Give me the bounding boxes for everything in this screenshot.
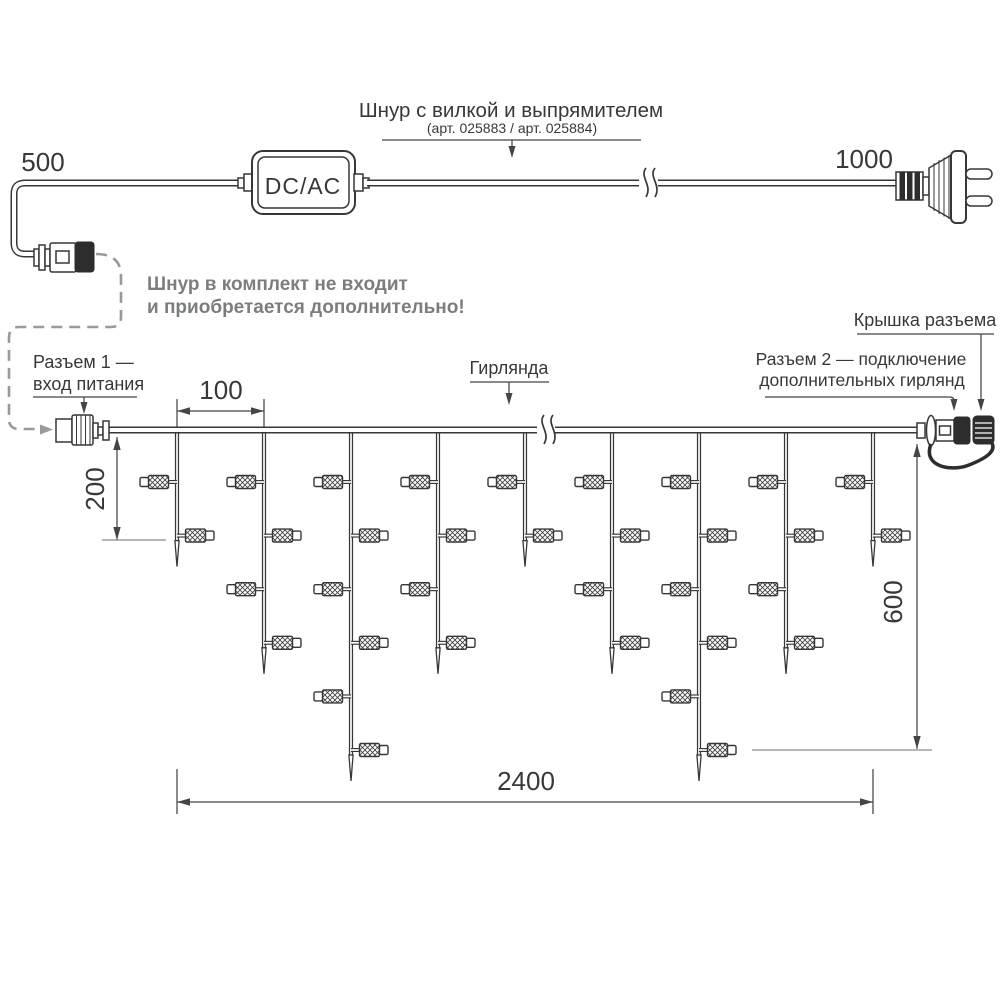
cord-break-icon [639, 168, 658, 197]
lamp-icon [488, 476, 525, 489]
arrowhead [913, 736, 920, 749]
dim-600: 600 [878, 580, 908, 623]
not-included-note-line2: и приобретается дополнительно! [147, 297, 465, 318]
drop-tip [349, 755, 353, 781]
lamp-body [149, 476, 169, 489]
lamp-tip [641, 638, 650, 647]
lamp-tip [140, 478, 149, 487]
lamp-body [360, 636, 380, 649]
lamp-tip [749, 585, 758, 594]
lamp-body [882, 529, 902, 542]
lamp-body [758, 476, 778, 489]
drop [662, 428, 736, 781]
lamp-icon [786, 529, 823, 542]
lamp-icon [264, 636, 301, 649]
lamp-body [584, 476, 604, 489]
lamp-icon [351, 529, 388, 542]
garland-drops [140, 428, 910, 781]
lamp-icon [873, 529, 910, 542]
lamp-body [273, 529, 293, 542]
lamp-icon [314, 690, 351, 703]
lamp-body [621, 636, 641, 649]
lamp-icon [264, 529, 301, 542]
lamp-body [360, 529, 380, 542]
lamp-tip [836, 478, 845, 487]
lamp-tip [662, 692, 671, 701]
drop [227, 428, 301, 674]
lamp-body [621, 529, 641, 542]
wire-break-icon [537, 415, 555, 444]
dim-2400: 2400 [497, 766, 555, 796]
lamp-tip [488, 478, 497, 487]
dashed-arrowhead [40, 425, 53, 435]
adapter-cable [14, 183, 240, 254]
lamp-tip [728, 638, 737, 647]
lamp-body [410, 476, 430, 489]
dc-ac-label: DC/AC [265, 173, 342, 199]
lamp-icon [401, 476, 438, 489]
arrowhead [81, 402, 88, 414]
lamp-icon [749, 476, 786, 489]
lamp-body [323, 583, 343, 596]
connector-cap-icon [973, 416, 994, 444]
lamp-body [360, 744, 380, 757]
cord-title: Шнур с вилкой и выпрямителем [359, 99, 663, 122]
lamp-icon [351, 636, 388, 649]
lamp-body [758, 583, 778, 596]
lamp-tip [314, 692, 323, 701]
lamp-body [671, 690, 691, 703]
drop-tip [784, 648, 788, 674]
lamp-body [447, 529, 467, 542]
lamp-tip [575, 478, 584, 487]
dashed-leader [9, 254, 121, 435]
arrowhead [113, 437, 120, 450]
lamp-body [671, 583, 691, 596]
drop [575, 428, 649, 674]
drop-tip [871, 541, 875, 567]
lamp-icon [699, 529, 736, 542]
dim-200: 200 [80, 467, 110, 510]
lamp-body [845, 476, 865, 489]
lamp-tip [662, 478, 671, 487]
cord-articles: (арт. 025883 / арт. 025884) [427, 120, 597, 136]
arrowhead [506, 393, 513, 405]
cap-label: Крышка разъема [854, 310, 997, 330]
lamp-body [534, 529, 554, 542]
lamp-body [323, 476, 343, 489]
lamp-tip [728, 531, 737, 540]
drop-tip [523, 541, 527, 567]
dimension-line [765, 397, 954, 403]
lamp-tip [380, 531, 389, 540]
lamp-icon [401, 583, 438, 596]
drop-tip [175, 541, 179, 567]
lamp-tip [728, 746, 737, 755]
connector2-label-line1: Разъем 2 — подключение [756, 349, 967, 369]
lamp-icon [575, 583, 612, 596]
lamp-tip [401, 585, 410, 594]
lamp-icon [612, 636, 649, 649]
lamp-tip [902, 531, 911, 540]
drop [836, 428, 910, 567]
lamp-icon [140, 476, 177, 489]
drop-tip [697, 755, 701, 781]
lamp-body [584, 583, 604, 596]
lamp-tip [815, 531, 824, 540]
arrowhead [951, 399, 958, 411]
drop [401, 428, 475, 674]
connector-2-plug [954, 417, 970, 444]
lamp-icon [314, 476, 351, 489]
lamp-icon [525, 529, 562, 542]
lamp-tip [815, 638, 824, 647]
arrowhead [913, 444, 920, 457]
lamp-body [236, 583, 256, 596]
lamp-icon [662, 690, 699, 703]
lamp-body [795, 529, 815, 542]
drop [314, 428, 388, 781]
lamp-tip [641, 531, 650, 540]
lamp-icon [177, 529, 214, 542]
arrowhead [177, 798, 190, 805]
power-plug-icon [896, 151, 992, 223]
arrowhead [251, 407, 264, 414]
lamp-icon [438, 529, 475, 542]
connector1-label-line2: вход питания [33, 374, 144, 394]
lamp-tip [380, 638, 389, 647]
lamp-tip [575, 585, 584, 594]
lamp-icon [314, 583, 351, 596]
dim-1000: 1000 [835, 144, 893, 174]
lamp-icon [612, 529, 649, 542]
lamp-body [447, 636, 467, 649]
lamp-body [708, 636, 728, 649]
arrowhead [978, 399, 985, 411]
connector2-label-line2: дополнительных гирлянд [759, 370, 964, 390]
lamp-icon [438, 636, 475, 649]
arrowhead [860, 798, 873, 805]
lamp-body [323, 690, 343, 703]
connector-1 [56, 415, 109, 445]
lamp-icon [227, 476, 264, 489]
lamp-tip [227, 478, 236, 487]
diagram-svg: 500 1000 Шнур с вилкой и выпрямителем (а… [0, 0, 1000, 1000]
lamp-tip [227, 585, 236, 594]
dim-500: 500 [21, 147, 64, 177]
lamp-icon [786, 636, 823, 649]
lamp-icon [575, 476, 612, 489]
lamp-tip [467, 638, 476, 647]
drop [140, 428, 214, 567]
lamp-icon [699, 636, 736, 649]
lamp-body [708, 529, 728, 542]
drop [488, 428, 562, 567]
drop [749, 428, 823, 674]
lamp-tip [401, 478, 410, 487]
lamp-tip [554, 531, 563, 540]
lamp-body [671, 476, 691, 489]
garland-label: Гирлянда [470, 358, 550, 378]
lamp-tip [749, 478, 758, 487]
arrowhead [177, 407, 190, 414]
lamp-body [795, 636, 815, 649]
lamp-tip [467, 531, 476, 540]
lamp-icon [699, 744, 736, 757]
drop-tip [610, 648, 614, 674]
lamp-icon [749, 583, 786, 596]
dim-100: 100 [199, 375, 242, 405]
lamp-tip [314, 585, 323, 594]
drop-tip [436, 648, 440, 674]
lamp-tip [314, 478, 323, 487]
arrowhead [509, 146, 516, 158]
drop-tip [262, 648, 266, 674]
lamp-icon [227, 583, 264, 596]
arrowhead [113, 527, 120, 540]
lamp-body [497, 476, 517, 489]
lamp-body [186, 529, 206, 542]
connector1-label-line1: Разъем 1 — [33, 352, 134, 372]
lamp-icon [351, 744, 388, 757]
lamp-tip [662, 585, 671, 594]
lamp-body [273, 636, 293, 649]
lamp-tip [293, 531, 302, 540]
cap-tether [929, 443, 993, 468]
lamp-tip [293, 638, 302, 647]
lamp-icon [662, 476, 699, 489]
connector-2 [917, 416, 994, 468]
labels: 500 1000 Шнур с вилкой и выпрямителем (а… [21, 99, 997, 796]
lamp-tip [206, 531, 215, 540]
lamp-body [708, 744, 728, 757]
lamp-icon [662, 583, 699, 596]
lamp-body [410, 583, 430, 596]
not-included-note-line1: Шнур в комплект не входит [147, 274, 408, 295]
lamp-icon [836, 476, 873, 489]
lamp-tip [380, 746, 389, 755]
lamp-body [236, 476, 256, 489]
adapter-output-connector [34, 242, 94, 272]
garland-wiring-diagram: 500 1000 Шнур с вилкой и выпрямителем (а… [0, 0, 1000, 1000]
